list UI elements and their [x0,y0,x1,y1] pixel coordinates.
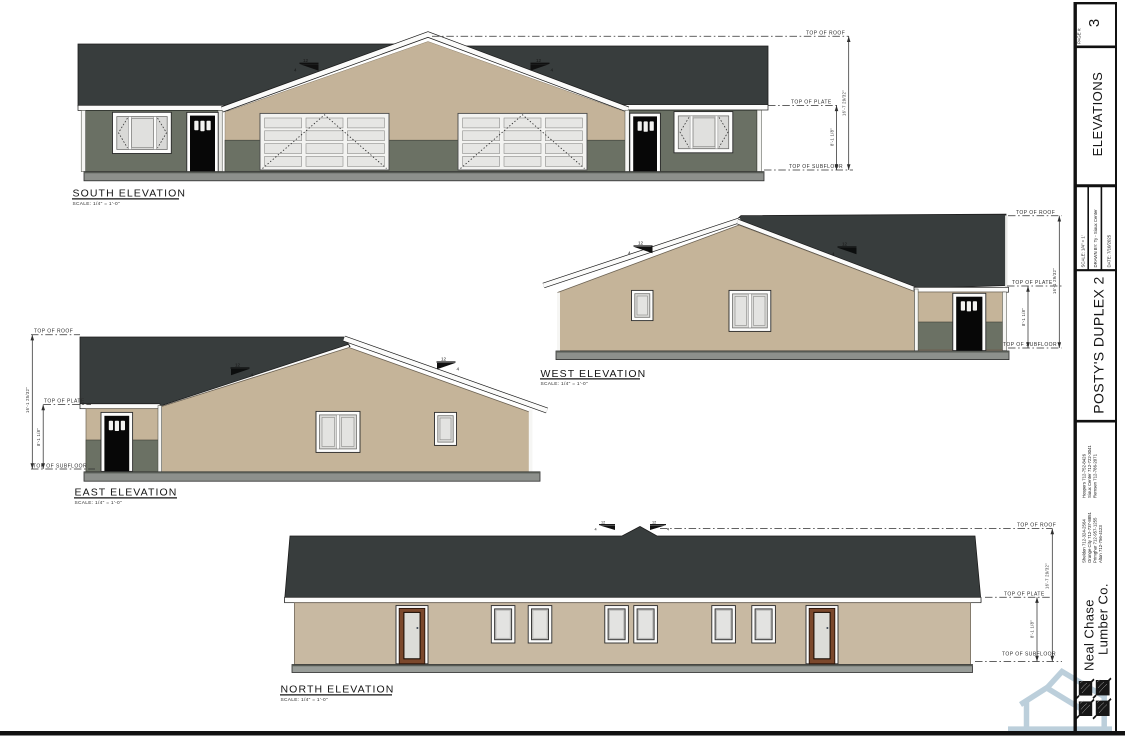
svg-text:TOP OF ROOF: TOP OF ROOF [806,30,845,36]
svg-text:TOP OF SUBFLOOR: TOP OF SUBFLOOR [1002,652,1056,658]
svg-text:12: 12 [235,363,241,368]
svg-text:Lumber Co.: Lumber Co. [1096,583,1111,655]
svg-text:SCALE: 1/4" = 1': SCALE: 1/4" = 1' [1081,235,1086,267]
svg-text:Alton 712-756-4123: Alton 712-756-4123 [1098,525,1103,563]
svg-text:SOUTH ELEVATION: SOUTH ELEVATION [73,188,187,200]
svg-text:16'-1 29/32": 16'-1 29/32" [1052,268,1057,294]
svg-text:4: 4 [294,68,297,73]
svg-text:12: 12 [441,357,447,362]
svg-text:12: 12 [842,242,848,247]
svg-text:4: 4 [251,373,254,378]
svg-text:TOP OF ROOF: TOP OF ROOF [1017,523,1056,529]
svg-text:8'-1 1/8": 8'-1 1/8" [1021,308,1026,326]
svg-text:SCALE: 1/4" = 1'-0": SCALE: 1/4" = 1'-0" [541,381,589,387]
svg-text:Primghar 712-957-1255: Primghar 712-957-1255 [1093,517,1098,563]
svg-text:PAGE #:: PAGE #: [1077,28,1082,44]
svg-text:3: 3 [1086,19,1103,27]
svg-text:12: 12 [638,241,644,246]
svg-text:SCALE: 1/4" = 1'-0": SCALE: 1/4" = 1'-0" [75,500,123,506]
svg-text:TOP OF SUBFLOOR: TOP OF SUBFLOOR [1003,342,1057,348]
svg-text:8'-1 1/8": 8'-1 1/8" [36,428,41,446]
svg-text:12: 12 [601,521,605,525]
svg-text:TOP OF PLATE: TOP OF PLATE [791,100,832,106]
svg-text:4: 4 [457,367,460,372]
svg-text:16'-1 25/32": 16'-1 25/32" [25,387,30,413]
svg-text:4: 4 [832,252,835,257]
svg-text:Neal Chase: Neal Chase [1082,599,1097,671]
svg-text:12: 12 [536,58,542,63]
svg-text:4: 4 [551,68,554,73]
svg-text:POSTY'S DUPLEX 2: POSTY'S DUPLEX 2 [1091,276,1107,413]
svg-text:EAST ELEVATION: EAST ELEVATION [75,487,178,499]
svg-text:TOP OF ROOF: TOP OF ROOF [1016,210,1055,216]
svg-text:DATE: 7/10/2025: DATE: 7/10/2025 [1107,234,1112,267]
svg-text:8'-1 1/8": 8'-1 1/8" [830,128,835,146]
svg-text:WEST ELEVATION: WEST ELEVATION [541,368,647,380]
svg-text:Hospers 712-752-8426: Hospers 712-752-8426 [1082,453,1087,498]
svg-text:12: 12 [652,521,656,525]
svg-text:TOP OF PLATE: TOP OF PLATE [44,399,85,405]
svg-text:16'-7 29/32": 16'-7 29/32" [1045,563,1050,589]
svg-text:SCALE: 1/4" = 1'-0": SCALE: 1/4" = 1'-0" [73,201,121,207]
svg-text:16'-7 29/32": 16'-7 29/32" [842,90,847,116]
svg-text:4: 4 [628,251,631,256]
svg-text:4: 4 [667,528,669,532]
svg-text:8'-1 1/8": 8'-1 1/8" [1030,620,1035,638]
svg-text:Sheldon 712-324-2564: Sheldon 712-324-2564 [1082,519,1087,563]
svg-text:NORTH ELEVATION: NORTH ELEVATION [281,684,395,696]
svg-text:4: 4 [595,528,597,532]
svg-text:TOP OF PLATE: TOP OF PLATE [1004,591,1045,597]
svg-text:Remsen 712-786-2071: Remsen 712-786-2071 [1093,453,1098,498]
svg-text:TOP OF SUBFLOOR: TOP OF SUBFLOOR [33,463,87,469]
svg-text:12: 12 [303,58,309,63]
svg-text:Orange City 712-737-8851: Orange City 712-737-8851 [1087,512,1092,563]
svg-text:ELEVATIONS: ELEVATIONS [1090,72,1105,157]
svg-text:Sioux Center 712-722-3041: Sioux Center 712-722-3041 [1087,445,1092,498]
svg-text:TOP OF PLATE: TOP OF PLATE [1012,280,1053,286]
svg-text:TOP OF SUBFLOOR: TOP OF SUBFLOOR [789,164,843,170]
svg-text:TOP OF ROOF: TOP OF ROOF [34,329,73,335]
svg-text:SCALE: 1/4" = 1'-0": SCALE: 1/4" = 1'-0" [281,697,329,703]
svg-text:DRAWN BY: Ty - Sioux Center: DRAWN BY: Ty - Sioux Center [1093,209,1098,268]
